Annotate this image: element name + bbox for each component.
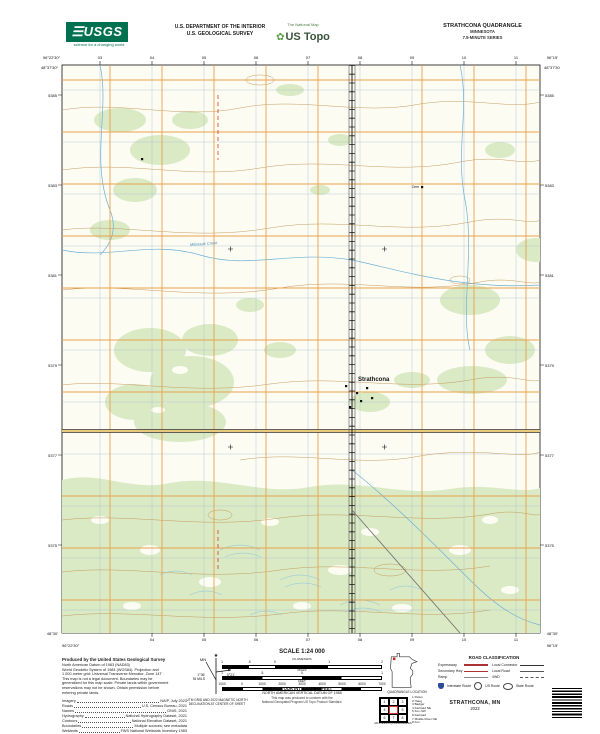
quad-location-marker bbox=[393, 658, 395, 660]
right-tick-5: 5375 bbox=[545, 543, 555, 548]
bottom-tick-7: 11 bbox=[514, 637, 519, 642]
right-tick-0: 5385 bbox=[545, 93, 555, 98]
right-tick-4: 5377 bbox=[545, 453, 555, 458]
sheet-year: 2022 bbox=[425, 706, 525, 711]
left-tick-0: 5385 bbox=[48, 93, 58, 98]
standard-line-2: National Geospatial Program US Topo Prod… bbox=[222, 701, 382, 705]
interstate-route-label: Interstate Route bbox=[447, 684, 471, 688]
scale-tick: .5 bbox=[261, 671, 264, 675]
cemetery-label: Cem bbox=[412, 185, 419, 189]
corner-tl-lat: 48°37′30″ bbox=[41, 65, 59, 70]
right-tick-3: 5379 bbox=[545, 363, 555, 368]
adj-cell-2: 2 bbox=[389, 698, 398, 706]
road-classification: ROAD CLASSIFICATION Expressway Local Con… bbox=[438, 655, 550, 690]
local-connector-line-sample bbox=[520, 665, 544, 666]
credit-row: WetlandsFWS National Wetlands Inventory … bbox=[62, 729, 187, 734]
corner-bl-lat: 48°30′ bbox=[47, 631, 58, 636]
fourwd-line-sample bbox=[520, 677, 544, 678]
top-tick-4: 07 bbox=[306, 55, 311, 60]
top-tick-7: 10 bbox=[462, 55, 467, 60]
scale-tick: 0 bbox=[274, 660, 276, 664]
true-north-star: ★ bbox=[214, 653, 219, 659]
adj-cell-4: 4 bbox=[380, 706, 389, 714]
ustopo-brand: US Topo bbox=[285, 31, 329, 43]
road-class-row: Ramp 4WD bbox=[438, 674, 550, 680]
scale-block: SCALE 1:24 000 KILOMETERS 1 .5 0 1 2 MIL… bbox=[222, 649, 382, 690]
mn-label: MN bbox=[200, 657, 206, 662]
adj-cell-1: 1 bbox=[380, 698, 389, 706]
expressway-line-sample bbox=[464, 664, 488, 666]
scale-bar-miles: MILES 1 .5 0 1 bbox=[222, 668, 382, 679]
scale-tick: 2 bbox=[381, 660, 383, 664]
bottom-tick-1: 05 bbox=[202, 637, 207, 642]
top-tick-2: 05 bbox=[202, 55, 207, 60]
scale-tick: 0 bbox=[301, 671, 303, 675]
mn-mils: 28 MILS bbox=[193, 677, 206, 681]
credit-value: FWS National Wetlands Inventory 1983 bbox=[121, 729, 187, 734]
left-tick-2: 5381 bbox=[48, 273, 58, 278]
topo-map: Strathcona Mikinaak Creek Cem 03 04 05 0… bbox=[40, 50, 560, 650]
adj-cell-5: 5 bbox=[398, 706, 407, 714]
interstate-shield-icon bbox=[438, 683, 444, 689]
corner-tr-lon: 96°15′ bbox=[547, 55, 558, 60]
town-label: Strathcona bbox=[358, 377, 390, 383]
produced-by: Produced by the United States Geological… bbox=[62, 657, 187, 662]
adjoining-item: 8 Fox bbox=[412, 721, 472, 725]
bottom-tick-0: 04 bbox=[150, 637, 155, 642]
ustopo-logo: The National Map ✿US Topo bbox=[268, 22, 338, 45]
left-tick-4: 5377 bbox=[48, 453, 58, 458]
local-road-line-sample bbox=[520, 671, 544, 672]
top-tick-3: 06 bbox=[254, 55, 259, 60]
road-class-label: 4WD bbox=[492, 674, 520, 680]
corner-bl-lon: 96°22′30″ bbox=[62, 643, 80, 648]
adjoining-quads-grid: 1 2 3 4 5 6 7 8 bbox=[379, 697, 408, 723]
scale-title: SCALE 1:24 000 bbox=[222, 649, 382, 655]
scale-bar-kilometers: KILOMETERS 1 .5 0 1 2 bbox=[222, 657, 382, 668]
top-tick-0: 03 bbox=[98, 55, 103, 60]
secondary-hwy-line-sample bbox=[464, 671, 488, 672]
quadrangle-title-block: STRATHCONA QUADRANGLE MINNESOTA 7.5-MINU… bbox=[400, 23, 565, 41]
top-tick-8: 11 bbox=[514, 55, 519, 60]
production-credits: Produced by the United States Geological… bbox=[62, 657, 187, 734]
top-tick-6: 09 bbox=[410, 55, 415, 60]
road-class-title: ROAD CLASSIFICATION bbox=[438, 655, 550, 660]
usgs-logo: ☰USGS bbox=[66, 22, 128, 42]
us-route-label: US Route bbox=[485, 684, 500, 688]
usgs-tagline: science for a changing world bbox=[64, 42, 134, 47]
usgs-logo-text: USGS bbox=[84, 24, 123, 39]
corner-br-lat: 48°30′ bbox=[547, 631, 558, 636]
ramp-line-sample bbox=[464, 677, 488, 678]
highway-ew bbox=[62, 430, 540, 433]
adj-cell-3: 3 bbox=[398, 698, 407, 706]
scale-tick: 1 bbox=[381, 671, 383, 675]
adjoining-caption: ADJOINING QUADRANGLES bbox=[370, 721, 416, 725]
contour-interval-block: CONTOUR INTERVAL 10 FEET NORTH AMERICAN … bbox=[222, 686, 382, 705]
bottom-tick-3: 07 bbox=[306, 637, 311, 642]
top-tick-5: 08 bbox=[358, 55, 363, 60]
state-route-shield-icon bbox=[503, 683, 513, 690]
scale-tick: .5 bbox=[248, 660, 251, 664]
adj-cell-center bbox=[389, 706, 398, 714]
state-locator-map bbox=[384, 651, 430, 689]
bottom-tick-5: 09 bbox=[410, 637, 415, 642]
corner-tr-lat: 48°37′30″ bbox=[544, 65, 560, 70]
vertical-datum: NORTH AMERICAN VERTICAL DATUM OF 1988 bbox=[222, 691, 382, 695]
left-tick-3: 5379 bbox=[48, 363, 58, 368]
bottom-tick-4: 08 bbox=[358, 637, 363, 642]
scale-tick: 1 bbox=[328, 660, 330, 664]
left-tick-1: 5383 bbox=[48, 183, 58, 188]
ustopo-flower-icon: ✿ bbox=[276, 32, 284, 43]
top-tick-1: 04 bbox=[150, 55, 155, 60]
quad-location-caption: QUADRANGLE LOCATION bbox=[376, 690, 438, 694]
route-shields-row: Interstate Route US Route State Route bbox=[438, 682, 550, 690]
us-route-shield-icon bbox=[474, 682, 482, 690]
scale-tick: 1 bbox=[221, 671, 223, 675]
road-class-label: Ramp bbox=[438, 674, 464, 680]
barcode bbox=[552, 688, 582, 718]
right-tick-1: 5383 bbox=[545, 183, 555, 188]
bottom-tick-6: 10 bbox=[462, 637, 467, 642]
bottom-tick-2: 06 bbox=[254, 637, 259, 642]
corner-tl-lon: 96°22′30″ bbox=[43, 55, 61, 60]
credit-label: Wetlands bbox=[62, 729, 78, 734]
right-tick-2: 5381 bbox=[545, 273, 555, 278]
left-tick-5: 5375 bbox=[48, 543, 58, 548]
corner-br-lon: 96°15′ bbox=[547, 643, 558, 648]
sheet-title-block: STRATHCONA, MN 2022 bbox=[425, 700, 525, 711]
scale-tick: 1 bbox=[221, 660, 223, 664]
quad-series: 7.5-MINUTE SERIES bbox=[400, 35, 565, 41]
state-route-label: State Route bbox=[516, 684, 534, 688]
